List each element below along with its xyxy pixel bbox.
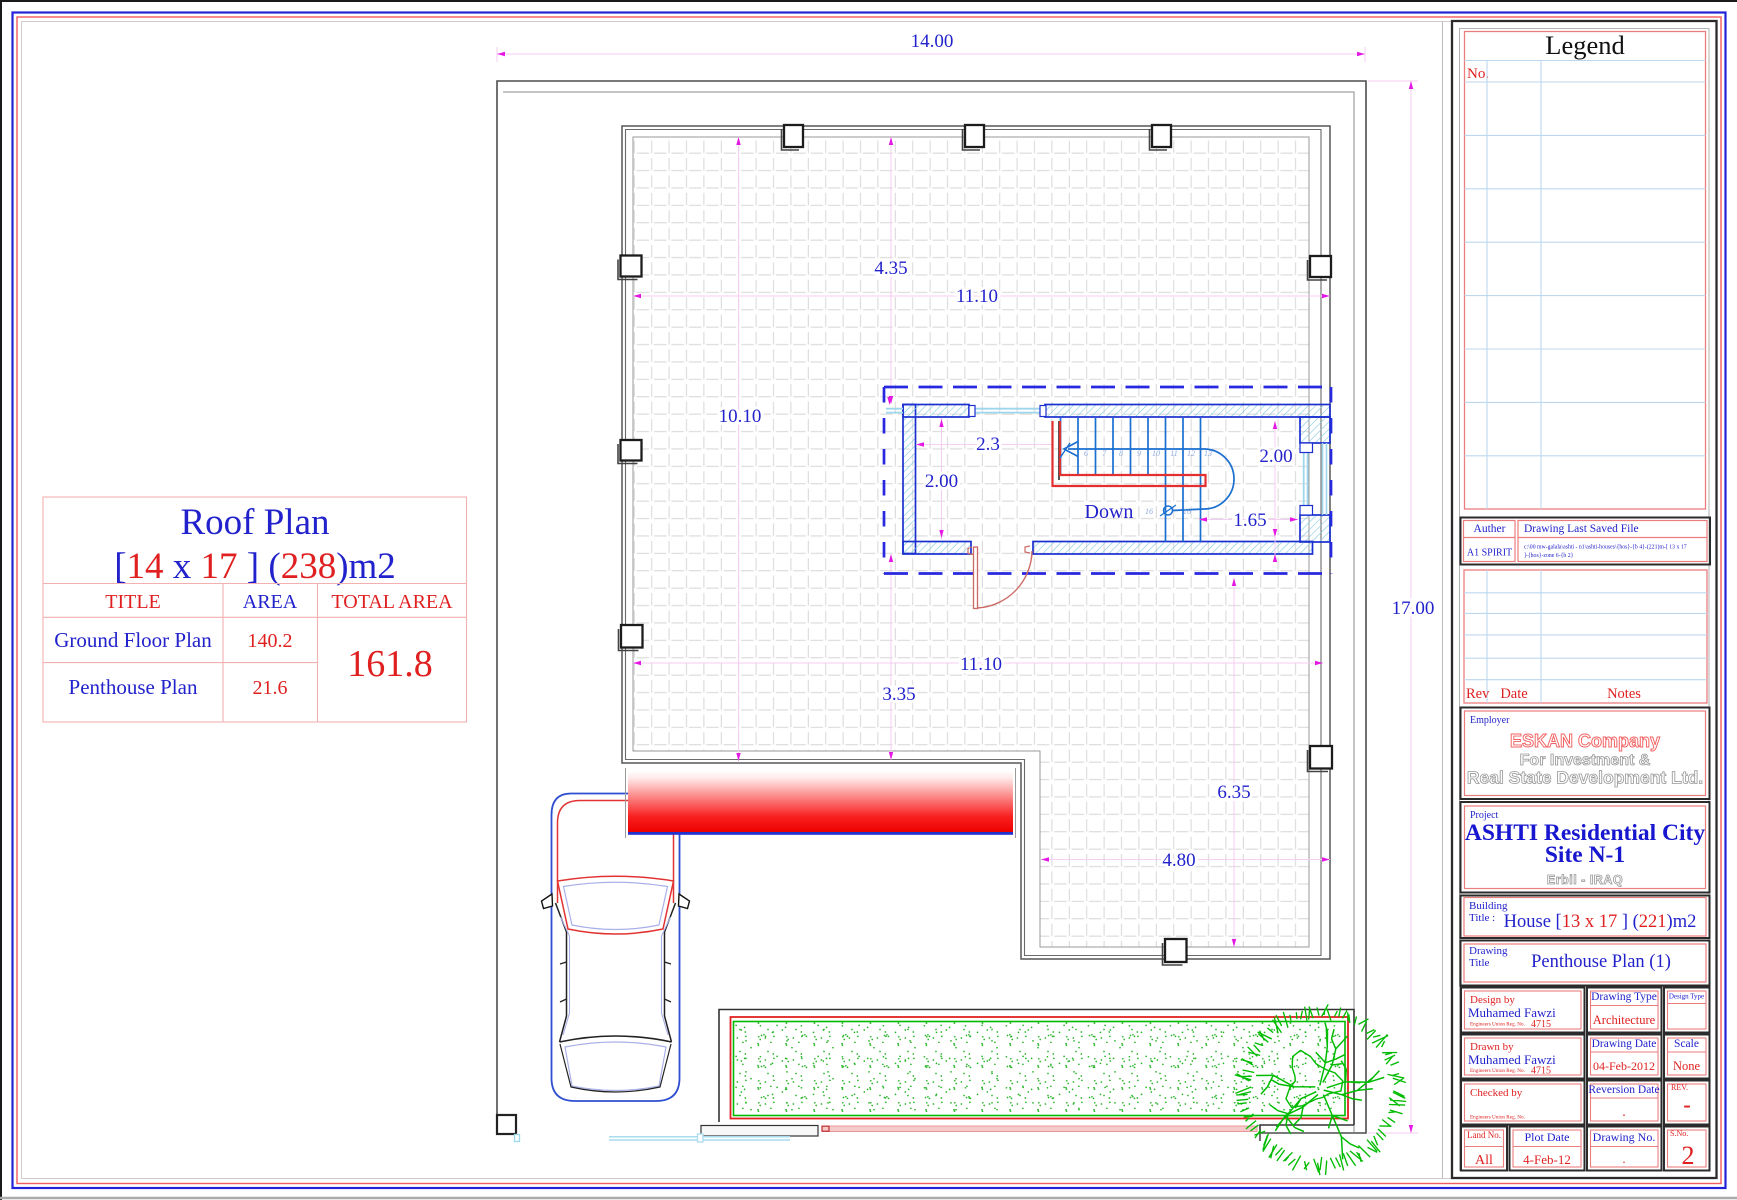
svg-text:Muhamed Fawzi: Muhamed Fawzi (1468, 1005, 1556, 1020)
svg-text:4.80: 4.80 (1162, 850, 1195, 871)
svg-text:Erbil - IRAQ: Erbil - IRAQ (1547, 873, 1623, 887)
svg-text:Down: Down (1085, 501, 1134, 523)
svg-text:12: 12 (1187, 449, 1195, 458)
svg-text:Architecture: Architecture (1593, 1013, 1656, 1027)
svg-text:2.3: 2.3 (976, 434, 1000, 455)
svg-text:AREA: AREA (243, 591, 298, 613)
svg-text:Reversion Date: Reversion Date (1588, 1084, 1659, 1096)
svg-text:Drawing Last Saved File: Drawing Last Saved File (1524, 523, 1639, 535)
svg-text:Checked by: Checked by (1470, 1087, 1523, 1099)
svg-text:21.6: 21.6 (253, 677, 288, 699)
svg-text:6: 6 (1084, 449, 1088, 458)
svg-text:Rev: Rev (1466, 686, 1490, 702)
svg-text:6.35: 6.35 (1217, 782, 1250, 803)
svg-text:Building: Building (1469, 900, 1508, 912)
svg-text:All: All (1475, 1153, 1493, 1168)
svg-text:4715: 4715 (1531, 1066, 1551, 1077)
svg-text:17.00: 17.00 (1392, 598, 1435, 619)
svg-text:No.: No. (1467, 66, 1489, 82)
svg-text:S.No.: S.No. (1670, 1129, 1688, 1138)
svg-text:Title :: Title : (1469, 912, 1495, 924)
svg-text:14.00: 14.00 (911, 31, 954, 52)
svg-text:140.2: 140.2 (248, 630, 293, 652)
svg-text:Employer: Employer (1470, 715, 1510, 726)
svg-text:2.00: 2.00 (1259, 446, 1292, 467)
svg-text:10: 10 (1152, 449, 1160, 458)
svg-text:Drawing Type: Drawing Type (1591, 991, 1657, 1003)
svg-text:16: 16 (1145, 507, 1153, 516)
svg-text:Drawing No.: Drawing No. (1593, 1130, 1656, 1144)
svg-text:4.35: 4.35 (874, 258, 907, 279)
svg-text:Land No.: Land No. (1467, 1130, 1501, 1140)
svg-text:Legend: Legend (1545, 30, 1624, 60)
svg-text:Engineers Union Reg. No.: Engineers Union Reg. No. (1470, 1022, 1525, 1028)
svg-text:161.8: 161.8 (347, 643, 433, 685)
svg-text:Scale: Scale (1674, 1038, 1699, 1050)
svg-text:Design Type: Design Type (1669, 993, 1704, 1001)
svg-text:TITLE: TITLE (105, 591, 161, 613)
svg-text:4715: 4715 (1531, 1019, 1551, 1030)
svg-text:4-Feb-12: 4-Feb-12 (1523, 1152, 1571, 1167)
svg-text:c:\00 mw-galala\ashti - n1\ash: c:\00 mw-galala\ashti - n1\ashti-houses\… (1524, 544, 1687, 551)
svg-text:REV.: REV. (1671, 1083, 1688, 1092)
svg-text:Ground Floor Plan: Ground Floor Plan (54, 628, 212, 652)
svg-text:Roof Plan: Roof Plan (180, 502, 329, 543)
svg-text:]-{hos}-zone 6-{b 2}: ]-{hos}-zone 6-{b 2} (1524, 553, 1574, 559)
svg-text:A1 SPIRIT: A1 SPIRIT (1467, 548, 1512, 559)
svg-text:Site N-1: Site N-1 (1545, 842, 1625, 868)
svg-text:Plot Date: Plot Date (1525, 1130, 1570, 1144)
svg-text:ESKAN Company: ESKAN Company (1510, 731, 1660, 751)
svg-text:9: 9 (1137, 449, 1141, 458)
svg-text:[14 x 17 ] (238)m2: [14 x 17 ] (238)m2 (114, 546, 396, 587)
svg-text:For Investment &: For Investment & (1520, 752, 1651, 769)
svg-text:1.65: 1.65 (1233, 510, 1266, 531)
svg-text:3.35: 3.35 (882, 684, 915, 705)
svg-text:Penthouse Plan: Penthouse Plan (69, 675, 198, 699)
svg-text:.: . (1622, 1105, 1626, 1120)
svg-text:13: 13 (1204, 449, 1212, 458)
svg-text:04-Feb-2012: 04-Feb-2012 (1593, 1059, 1655, 1073)
svg-text:.: . (1622, 1151, 1625, 1166)
svg-text:Notes: Notes (1607, 686, 1641, 702)
svg-text:11.10: 11.10 (956, 286, 998, 307)
svg-text:8: 8 (1119, 449, 1123, 458)
svg-text:2.00: 2.00 (925, 471, 958, 492)
svg-text:TOTAL AREA: TOTAL AREA (331, 591, 453, 613)
svg-text:Drawing: Drawing (1469, 945, 1508, 957)
svg-text:10.10: 10.10 (719, 406, 762, 427)
svg-text:-: - (1683, 1092, 1690, 1117)
svg-text:16: 16 (1183, 507, 1191, 516)
svg-text:Date: Date (1500, 686, 1527, 702)
svg-text:Real State Development Ltd.: Real State Development Ltd. (1467, 768, 1703, 788)
svg-text:House [13 x 17 ] (221)m2: House [13 x 17 ] (221)m2 (1504, 912, 1697, 932)
svg-text:11: 11 (1170, 449, 1177, 458)
svg-text:Auther: Auther (1474, 523, 1506, 535)
svg-text:Title: Title (1469, 957, 1490, 969)
svg-text:Drawing Date: Drawing Date (1592, 1038, 1657, 1050)
svg-text:Penthouse Plan (1): Penthouse Plan (1) (1531, 952, 1671, 972)
svg-text:11.10: 11.10 (960, 654, 1002, 675)
svg-text:Engineers Union Reg. No.: Engineers Union Reg. No. (1470, 1115, 1525, 1121)
svg-text:Engineers Union Reg. No.: Engineers Union Reg. No. (1470, 1068, 1525, 1074)
svg-text:None: None (1673, 1059, 1701, 1073)
svg-text:2: 2 (1682, 1141, 1695, 1170)
